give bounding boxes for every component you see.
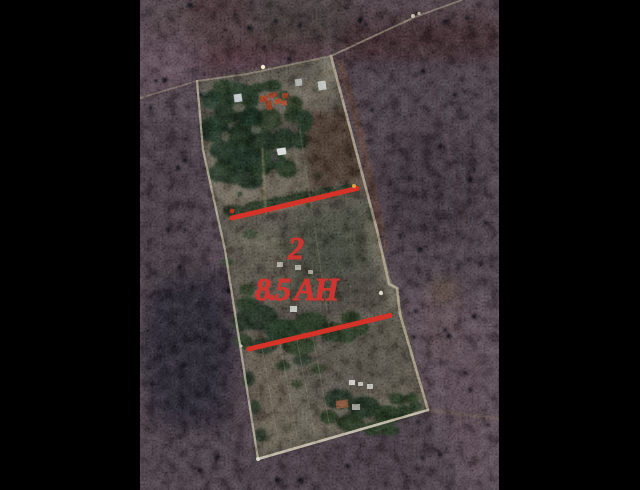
svg-text:8.5 AH: 8.5 AH (255, 271, 340, 307)
svg-text:2: 2 (287, 230, 304, 266)
